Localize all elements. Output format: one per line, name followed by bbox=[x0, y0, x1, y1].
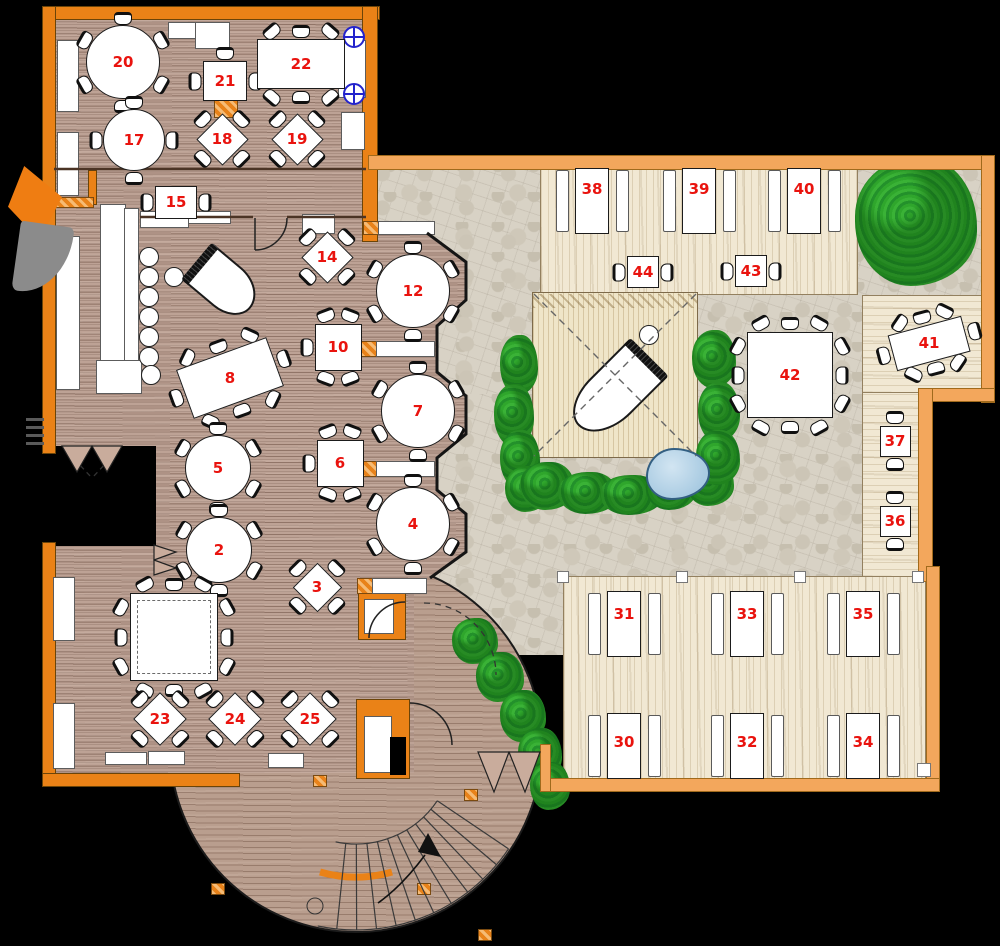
counter bbox=[364, 599, 394, 634]
bench-seat bbox=[723, 170, 736, 232]
floor-plan: 2021221718191514121087652342324253839404… bbox=[0, 0, 1000, 946]
chair bbox=[409, 361, 427, 374]
chair bbox=[769, 262, 782, 280]
table-number: 32 bbox=[737, 733, 758, 751]
counter bbox=[268, 753, 304, 768]
bar-stool bbox=[139, 247, 159, 267]
table-number: 4 bbox=[408, 515, 418, 533]
deck-post bbox=[557, 571, 569, 583]
table-number: 42 bbox=[780, 366, 801, 384]
table-number: 10 bbox=[328, 338, 349, 356]
counter bbox=[124, 208, 139, 378]
table-number: 33 bbox=[737, 605, 758, 623]
table-top bbox=[730, 591, 764, 657]
bench-seat bbox=[556, 170, 569, 232]
vent-lines bbox=[26, 442, 44, 445]
table-number: 5 bbox=[213, 459, 223, 477]
table-number: 39 bbox=[689, 180, 710, 198]
chair bbox=[115, 628, 128, 646]
chair bbox=[836, 366, 849, 384]
table-number: 20 bbox=[113, 53, 134, 71]
chair bbox=[165, 578, 183, 591]
entry-recess bbox=[46, 446, 156, 546]
table-number: 24 bbox=[225, 710, 246, 728]
counter bbox=[376, 341, 435, 357]
bench-seat bbox=[887, 715, 900, 777]
counter bbox=[148, 751, 185, 765]
table-number: 41 bbox=[919, 334, 940, 352]
table-top bbox=[787, 168, 821, 234]
table-number: 6 bbox=[335, 454, 345, 472]
chair bbox=[732, 366, 745, 384]
table-number: 44 bbox=[633, 263, 654, 281]
bar-stool bbox=[139, 267, 159, 287]
chair bbox=[404, 241, 422, 254]
chair bbox=[292, 91, 310, 104]
opening bbox=[390, 737, 406, 775]
chair bbox=[221, 628, 234, 646]
bar-stool bbox=[139, 347, 159, 367]
chair bbox=[781, 421, 799, 434]
counter bbox=[195, 22, 230, 49]
table-number: 8 bbox=[225, 369, 235, 387]
bench-seat bbox=[711, 715, 724, 777]
bench-seat bbox=[711, 593, 724, 655]
table-number: 25 bbox=[300, 710, 321, 728]
table-top bbox=[846, 591, 880, 657]
counter bbox=[96, 360, 142, 394]
wall bbox=[918, 388, 933, 582]
counter bbox=[364, 716, 392, 773]
counter bbox=[53, 703, 75, 769]
chair bbox=[661, 263, 674, 281]
table-number: 19 bbox=[287, 130, 308, 148]
bench-seat bbox=[768, 170, 781, 232]
vent-lines bbox=[26, 418, 44, 421]
wall-post bbox=[313, 775, 327, 787]
bar-stool bbox=[639, 325, 659, 345]
table-number: 30 bbox=[614, 733, 635, 751]
wall-post bbox=[417, 883, 431, 895]
bar-stool bbox=[139, 327, 159, 347]
deck-post bbox=[917, 763, 931, 777]
wall-post bbox=[478, 929, 492, 941]
chair bbox=[404, 562, 422, 575]
table-number: 2 bbox=[214, 541, 224, 559]
table-number: 40 bbox=[794, 180, 815, 198]
chair bbox=[721, 262, 734, 280]
chair bbox=[302, 454, 315, 472]
chair bbox=[125, 172, 143, 185]
bench-seat bbox=[771, 715, 784, 777]
bush-icon bbox=[855, 158, 977, 286]
chair bbox=[210, 504, 228, 517]
table-number: 22 bbox=[291, 55, 312, 73]
chair bbox=[886, 538, 904, 551]
counter bbox=[372, 578, 427, 594]
surveyor-target-icon bbox=[343, 83, 365, 105]
bench-seat bbox=[828, 170, 841, 232]
chair bbox=[166, 131, 179, 149]
chair bbox=[125, 96, 143, 109]
counter bbox=[105, 752, 147, 765]
table-top bbox=[682, 168, 716, 234]
table-number: 35 bbox=[853, 605, 874, 623]
bar-stool bbox=[139, 287, 159, 307]
counter bbox=[341, 112, 365, 150]
table-number: 17 bbox=[124, 131, 145, 149]
table-number: 7 bbox=[413, 402, 423, 420]
bench-seat bbox=[588, 715, 601, 777]
chair bbox=[886, 411, 904, 424]
table-top bbox=[575, 168, 609, 234]
chair bbox=[189, 72, 202, 90]
vent-lines bbox=[26, 434, 44, 437]
bench-seat bbox=[887, 593, 900, 655]
table-number: 23 bbox=[150, 710, 171, 728]
deck-post bbox=[794, 571, 806, 583]
table-number: 34 bbox=[853, 733, 874, 751]
table-number: 3 bbox=[312, 578, 322, 596]
surveyor-target-icon bbox=[343, 26, 365, 48]
bench-seat bbox=[827, 593, 840, 655]
bench-seat bbox=[648, 593, 661, 655]
table-number: 21 bbox=[215, 72, 236, 90]
table-number: 31 bbox=[614, 605, 635, 623]
chair bbox=[209, 422, 227, 435]
counter bbox=[57, 132, 79, 196]
chair bbox=[216, 47, 234, 60]
table-number: 38 bbox=[582, 180, 603, 198]
chair bbox=[886, 458, 904, 471]
chair bbox=[404, 474, 422, 487]
vent-lines bbox=[26, 426, 44, 429]
banquet-dashed-inlay bbox=[137, 600, 211, 674]
wall-post bbox=[211, 883, 225, 895]
bush-icon bbox=[692, 330, 736, 388]
chair bbox=[781, 317, 799, 330]
bar-stool bbox=[164, 267, 184, 287]
table-number: 36 bbox=[885, 512, 906, 530]
deck-post bbox=[912, 571, 924, 583]
chair bbox=[141, 193, 154, 211]
counter bbox=[168, 22, 197, 39]
table-number: 43 bbox=[741, 262, 762, 280]
bar-stool bbox=[141, 365, 161, 385]
table-number: 37 bbox=[885, 432, 906, 450]
chair bbox=[292, 25, 310, 38]
bench-seat bbox=[648, 715, 661, 777]
stage-ramp-hatch bbox=[533, 294, 697, 308]
counter bbox=[57, 40, 79, 112]
deck-post bbox=[676, 571, 688, 583]
counter bbox=[53, 577, 75, 641]
chair bbox=[404, 329, 422, 342]
table-top bbox=[607, 591, 641, 657]
bench-seat bbox=[771, 593, 784, 655]
table-number: 18 bbox=[212, 130, 233, 148]
counter bbox=[100, 204, 126, 380]
chair bbox=[199, 193, 212, 211]
table-number: 14 bbox=[317, 248, 338, 266]
bar-stool bbox=[139, 307, 159, 327]
chair bbox=[114, 12, 132, 25]
wall bbox=[540, 744, 551, 792]
wall bbox=[981, 155, 995, 403]
bench-seat bbox=[616, 170, 629, 232]
chair bbox=[409, 449, 427, 462]
wall-post bbox=[464, 789, 478, 801]
table-number: 12 bbox=[403, 282, 424, 300]
wall bbox=[926, 566, 940, 792]
bench-seat bbox=[663, 170, 676, 232]
wall bbox=[42, 6, 380, 20]
bench-seat bbox=[827, 715, 840, 777]
wall bbox=[548, 778, 940, 792]
bench-seat bbox=[588, 593, 601, 655]
chair bbox=[613, 263, 626, 281]
chair bbox=[90, 131, 103, 149]
wall bbox=[42, 773, 240, 787]
chair bbox=[886, 491, 904, 504]
chair bbox=[300, 338, 313, 356]
table-number: 15 bbox=[166, 193, 187, 211]
counter bbox=[378, 221, 435, 235]
